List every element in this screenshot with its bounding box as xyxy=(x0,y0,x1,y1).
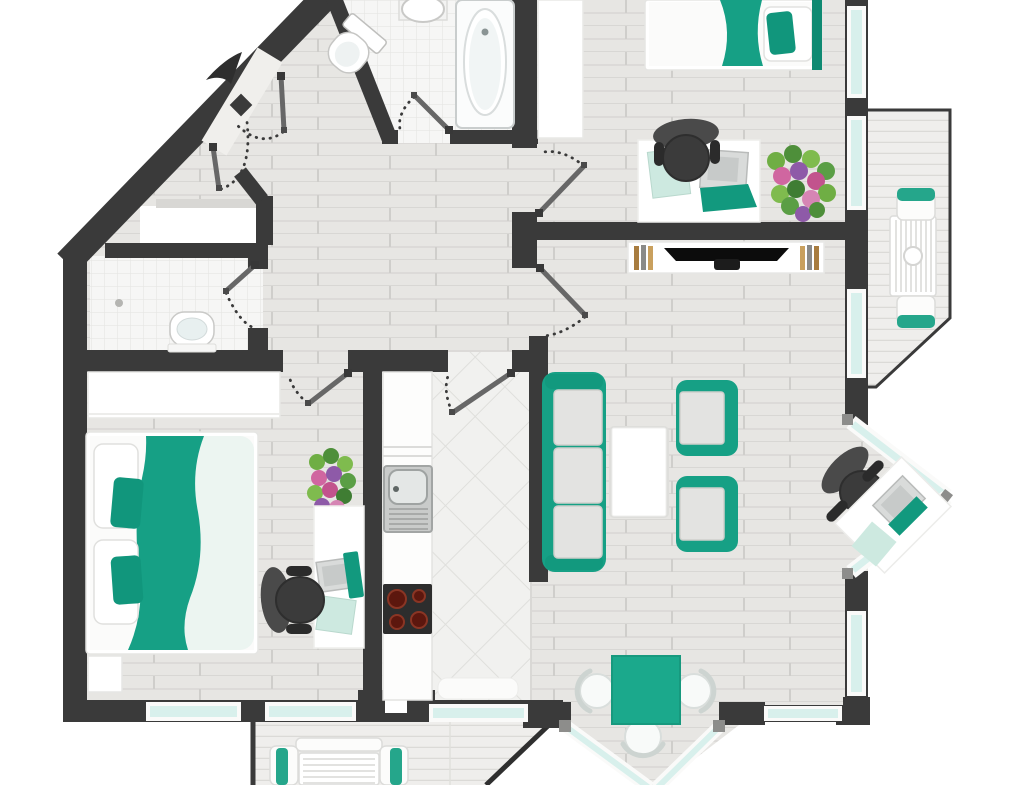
window-living-bottom-glass xyxy=(768,709,838,718)
bouquet-bedroom2 xyxy=(795,206,811,222)
sofa-armrest-top xyxy=(545,374,603,389)
tv-books-right xyxy=(807,245,812,270)
bouquet-bedroom2 xyxy=(787,180,805,198)
window-bottom-2-glass xyxy=(269,706,352,717)
coffee-table xyxy=(612,428,666,516)
door-handles xyxy=(281,127,287,133)
wall-bathroom-right xyxy=(512,0,537,148)
sofa-cushions xyxy=(554,448,602,503)
window-kitchen-glass xyxy=(433,708,524,718)
door-hinges xyxy=(251,261,259,269)
door-hinges xyxy=(277,72,285,80)
bouquet-bedroom1 xyxy=(322,482,338,498)
kitchen-sink-faucet xyxy=(393,486,399,492)
wall-bedroom2-living xyxy=(530,222,845,240)
door-hinges xyxy=(536,264,544,272)
floor-plan-svg xyxy=(0,0,1018,785)
window-right-2-glass xyxy=(851,120,862,206)
bouquet-bedroom2 xyxy=(790,162,808,180)
bathtub-faucet xyxy=(482,29,489,36)
door-hinges xyxy=(445,126,453,134)
armchair-2-cushion xyxy=(680,488,724,540)
wall-bathmain-bottom-west xyxy=(382,130,398,144)
sofa-cushions xyxy=(554,506,602,558)
bouquet-bedroom2 xyxy=(784,145,802,163)
bouquet-bedroom1 xyxy=(323,448,339,464)
toilet-small-seat xyxy=(177,318,207,340)
patio-chair-bottom-left-back xyxy=(276,748,288,785)
office-chair-bedroom1-arms xyxy=(286,624,312,634)
stove-burners xyxy=(413,590,425,602)
kitchen-rug xyxy=(438,678,518,699)
office-chair-bedroom2-seat xyxy=(663,135,709,181)
door-handles xyxy=(581,162,587,168)
entry-closet xyxy=(140,206,263,246)
office-chair-bedroom2-arms xyxy=(710,140,720,164)
bed2-pillow-teal xyxy=(766,11,796,55)
wall-hall-mid xyxy=(348,350,448,372)
window-bottom-1-glass xyxy=(150,706,237,717)
dining-table xyxy=(612,656,680,724)
tv-books-right xyxy=(814,246,819,270)
nook-hinge-right xyxy=(713,720,725,732)
window-right-1-glass xyxy=(851,10,862,94)
window-right-3-glass xyxy=(851,293,862,374)
shower-drain xyxy=(115,299,123,307)
nightstand-bottom xyxy=(88,656,122,692)
door-handles xyxy=(582,312,588,318)
bouquet-bedroom2 xyxy=(809,202,825,218)
wall-left xyxy=(63,250,87,722)
bouquet-bedroom1 xyxy=(326,466,342,482)
dining-chair-left xyxy=(580,674,614,708)
bouquet-bedroom2 xyxy=(818,184,836,202)
armchair-1-cushion xyxy=(680,392,724,444)
stove-burners xyxy=(390,615,404,629)
wall-bathmain-bottom-east xyxy=(450,130,538,144)
door-handles xyxy=(216,185,222,191)
dining-chair-right xyxy=(677,674,711,708)
office-chair-bedroom1-seat xyxy=(276,577,324,623)
desk1-laptop-screen xyxy=(322,564,348,587)
tv-books-right xyxy=(800,246,805,270)
door-handles xyxy=(223,288,229,294)
bath-sink xyxy=(402,0,444,22)
tv-books-left xyxy=(648,246,653,270)
door-hinges xyxy=(507,369,515,377)
floor-kitchen xyxy=(430,352,531,705)
office-chair-bedroom1-arms xyxy=(286,566,312,576)
patio-table-right-center xyxy=(904,247,922,265)
stove-burners xyxy=(411,612,427,628)
bouquet-bedroom1 xyxy=(340,473,356,489)
wall-bathsmall-top xyxy=(105,243,265,258)
wall-bedroom1-kitchen xyxy=(363,372,382,705)
wall-nook-shoulder-right xyxy=(719,702,765,725)
sofa-cushions xyxy=(554,390,602,445)
wall-closet-divider xyxy=(256,196,273,245)
door-handles xyxy=(449,409,455,415)
door-handles xyxy=(305,400,311,406)
patio-bench-bottom xyxy=(296,738,382,751)
bouquet-bedroom2 xyxy=(773,167,791,185)
bouquet-bedroom1 xyxy=(311,470,327,486)
bay-hinge-top xyxy=(842,414,853,425)
bouquet-bedroom1 xyxy=(309,454,325,470)
tv-books-left xyxy=(641,245,646,270)
patio-chair-right-top-back xyxy=(897,188,935,201)
toilet-small-tank xyxy=(168,344,216,352)
office-chair-bedroom2-arms xyxy=(654,142,664,166)
door-handles xyxy=(411,92,417,98)
wardrobe-bedroom2 xyxy=(538,0,583,138)
patio-table-bottom xyxy=(299,753,379,785)
patio-chair-bottom-right-back xyxy=(390,748,402,785)
wall-hall-east xyxy=(512,350,542,372)
bed1-pillow-teal-top xyxy=(110,477,144,529)
tv-stand xyxy=(714,259,740,270)
door-entry2-leaf xyxy=(281,76,284,130)
bay-hinge-bottom xyxy=(842,568,853,579)
entry-closet-shelf xyxy=(156,199,263,208)
window-right-4-glass xyxy=(851,615,862,692)
stove-burners xyxy=(388,590,406,608)
door-hinges xyxy=(535,209,543,217)
kitchen-counter xyxy=(383,372,432,700)
wall-bathsmall-right-lower xyxy=(248,328,268,354)
patio-chair-right-bottom-back xyxy=(897,315,935,328)
door-hinges xyxy=(344,369,352,377)
bed2-headboard xyxy=(812,0,822,70)
bed1-pillow-teal-bottom xyxy=(110,555,143,605)
floor-plan xyxy=(0,0,1018,785)
wardrobe-bedroom1 xyxy=(88,372,280,418)
nook-hinge-left xyxy=(559,720,571,732)
tv-books-left xyxy=(634,246,639,270)
door-hinges xyxy=(209,143,217,151)
